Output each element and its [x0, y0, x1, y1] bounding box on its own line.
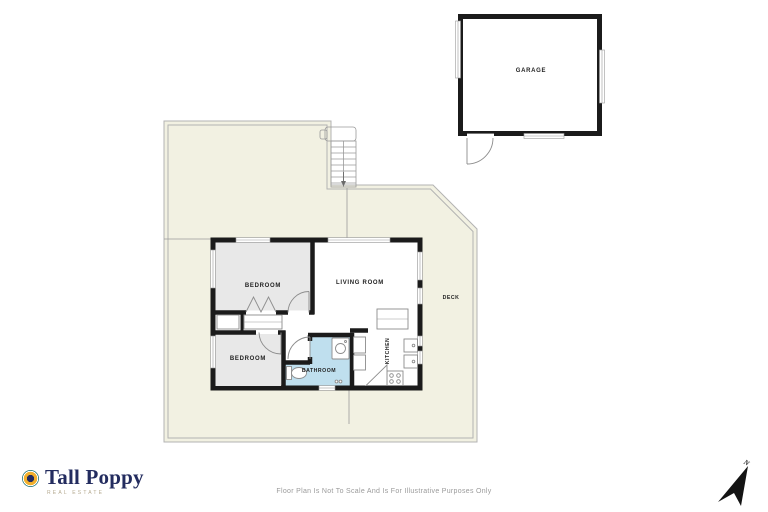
floor-plan-page: GARAGE	[0, 0, 768, 512]
deck-label: DECK	[443, 295, 460, 301]
kitchen-label: KITCHEN	[385, 338, 391, 365]
north-label: N	[741, 458, 751, 468]
garage-window-right	[600, 50, 605, 103]
fridge	[354, 337, 366, 353]
bathroom-label: BATHROOM	[302, 368, 336, 374]
tall-poppy-logo-icon	[22, 470, 39, 487]
bedroom-1-left-window	[211, 250, 216, 288]
house: BEDROOM LIVING ROOM BEDROOM BATHROOM KIT…	[211, 238, 423, 391]
pantry	[354, 355, 366, 370]
bedroom-1-top-window	[236, 238, 270, 243]
north-arrow-icon	[718, 466, 748, 506]
bathroom-vanity	[332, 338, 349, 359]
bedroom-1-label: BEDROOM	[245, 283, 281, 289]
living-room-top-window	[328, 238, 390, 243]
floor-plan-drawing: GARAGE	[0, 0, 768, 512]
bedroom-1-floor	[216, 243, 311, 311]
garage-label: GARAGE	[516, 68, 547, 74]
bathroom-bottom-window	[319, 386, 335, 391]
stove	[387, 371, 403, 386]
living-room-label: LIVING ROOM	[336, 280, 384, 286]
north-arrow: N	[718, 458, 752, 506]
brand-name: Tall Poppy	[45, 467, 144, 488]
garage: GARAGE	[456, 17, 605, 165]
garage-walls	[461, 17, 600, 134]
disclaimer-text: Floor Plan Is Not To Scale And Is For Il…	[0, 488, 768, 495]
hall-closet-left	[217, 315, 239, 329]
bedroom-2-label: BEDROOM	[230, 356, 266, 362]
garage-door	[467, 134, 494, 164]
garage-window-bottom	[524, 134, 564, 139]
garage-window-left	[456, 21, 461, 78]
stair-direction-arrow	[341, 172, 346, 187]
bedroom-2-left-window	[211, 336, 216, 368]
hall-closets	[217, 315, 282, 329]
living-room-right-slider	[418, 252, 423, 304]
